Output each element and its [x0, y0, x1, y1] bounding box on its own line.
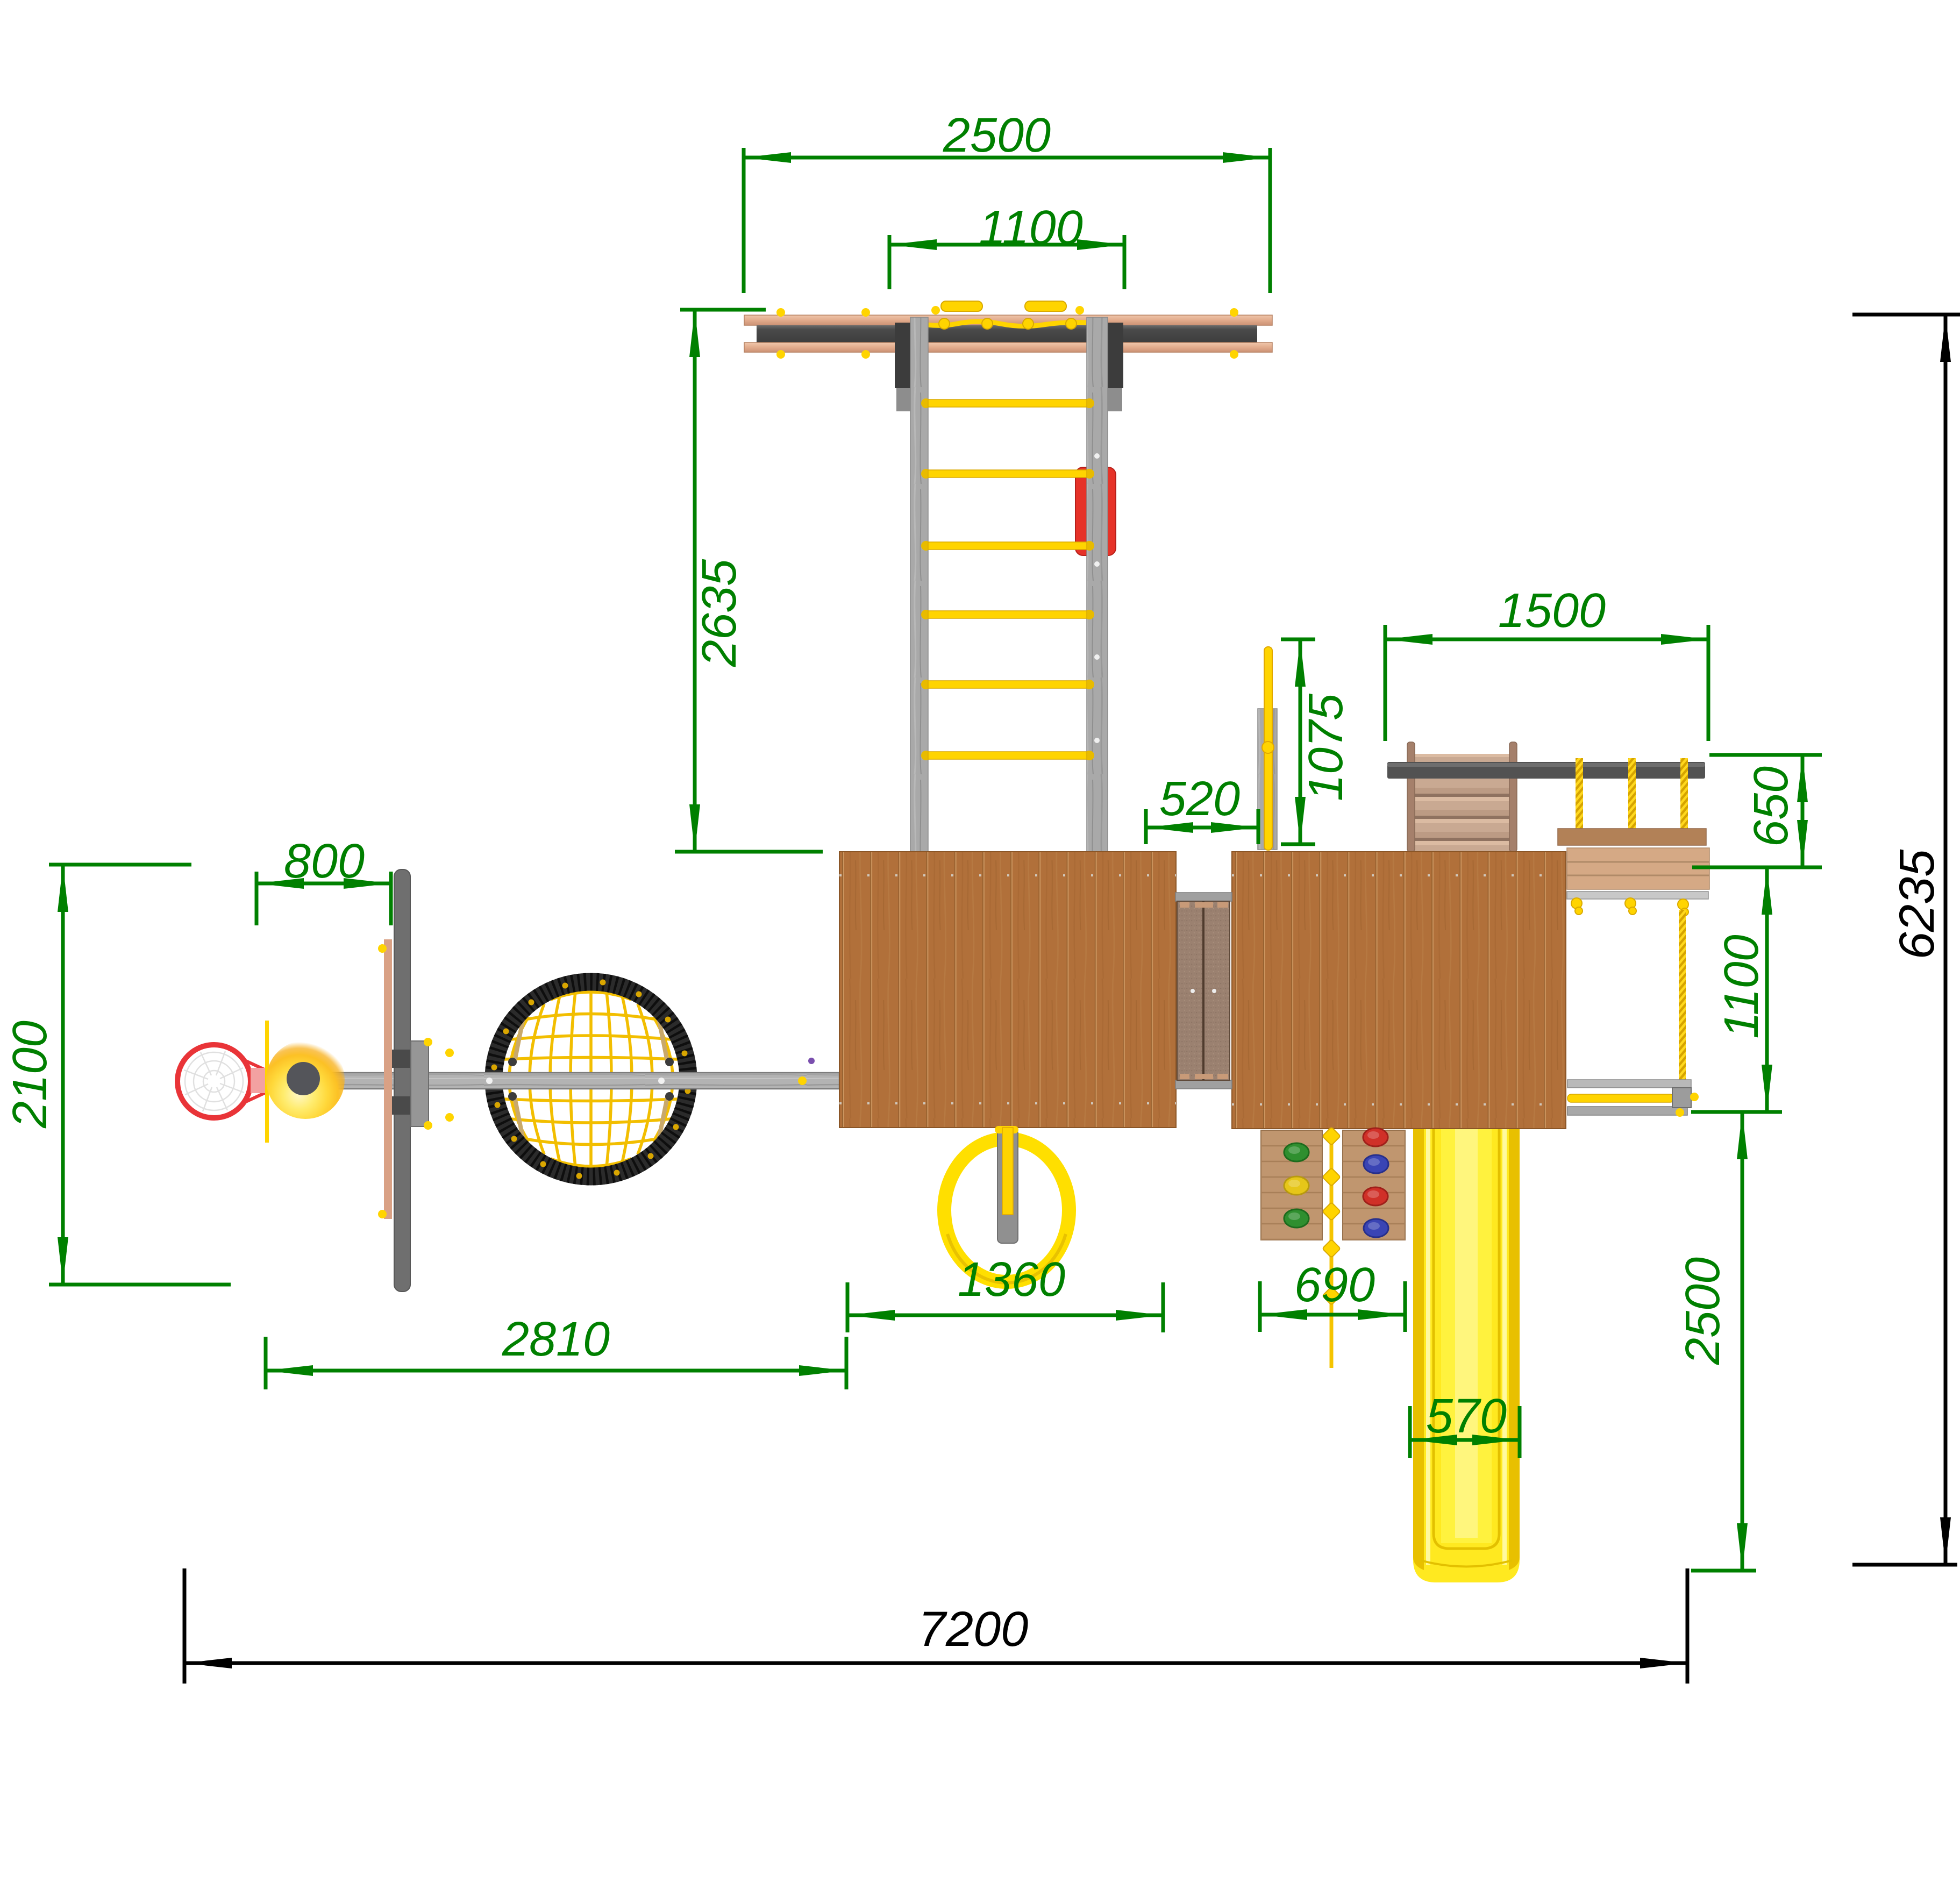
svg-text:2810: 2810	[502, 1313, 610, 1366]
svg-text:1075: 1075	[1299, 693, 1353, 801]
svg-text:7200: 7200	[918, 1602, 1029, 1657]
svg-text:650: 650	[1744, 766, 1798, 847]
svg-text:1500: 1500	[1498, 584, 1606, 638]
svg-text:1100: 1100	[979, 201, 1083, 255]
svg-text:2500: 2500	[1676, 1257, 1730, 1365]
svg-text:6235: 6235	[1890, 849, 1944, 959]
svg-text:570: 570	[1426, 1389, 1507, 1443]
svg-text:690: 690	[1294, 1258, 1375, 1312]
svg-text:1100: 1100	[1715, 935, 1769, 1039]
svg-text:2635: 2635	[693, 559, 746, 667]
svg-text:1360: 1360	[958, 1253, 1065, 1307]
svg-text:800: 800	[284, 835, 365, 888]
svg-text:2100: 2100	[3, 1021, 57, 1129]
svg-text:2500: 2500	[943, 109, 1051, 162]
svg-text:520: 520	[1159, 772, 1240, 826]
